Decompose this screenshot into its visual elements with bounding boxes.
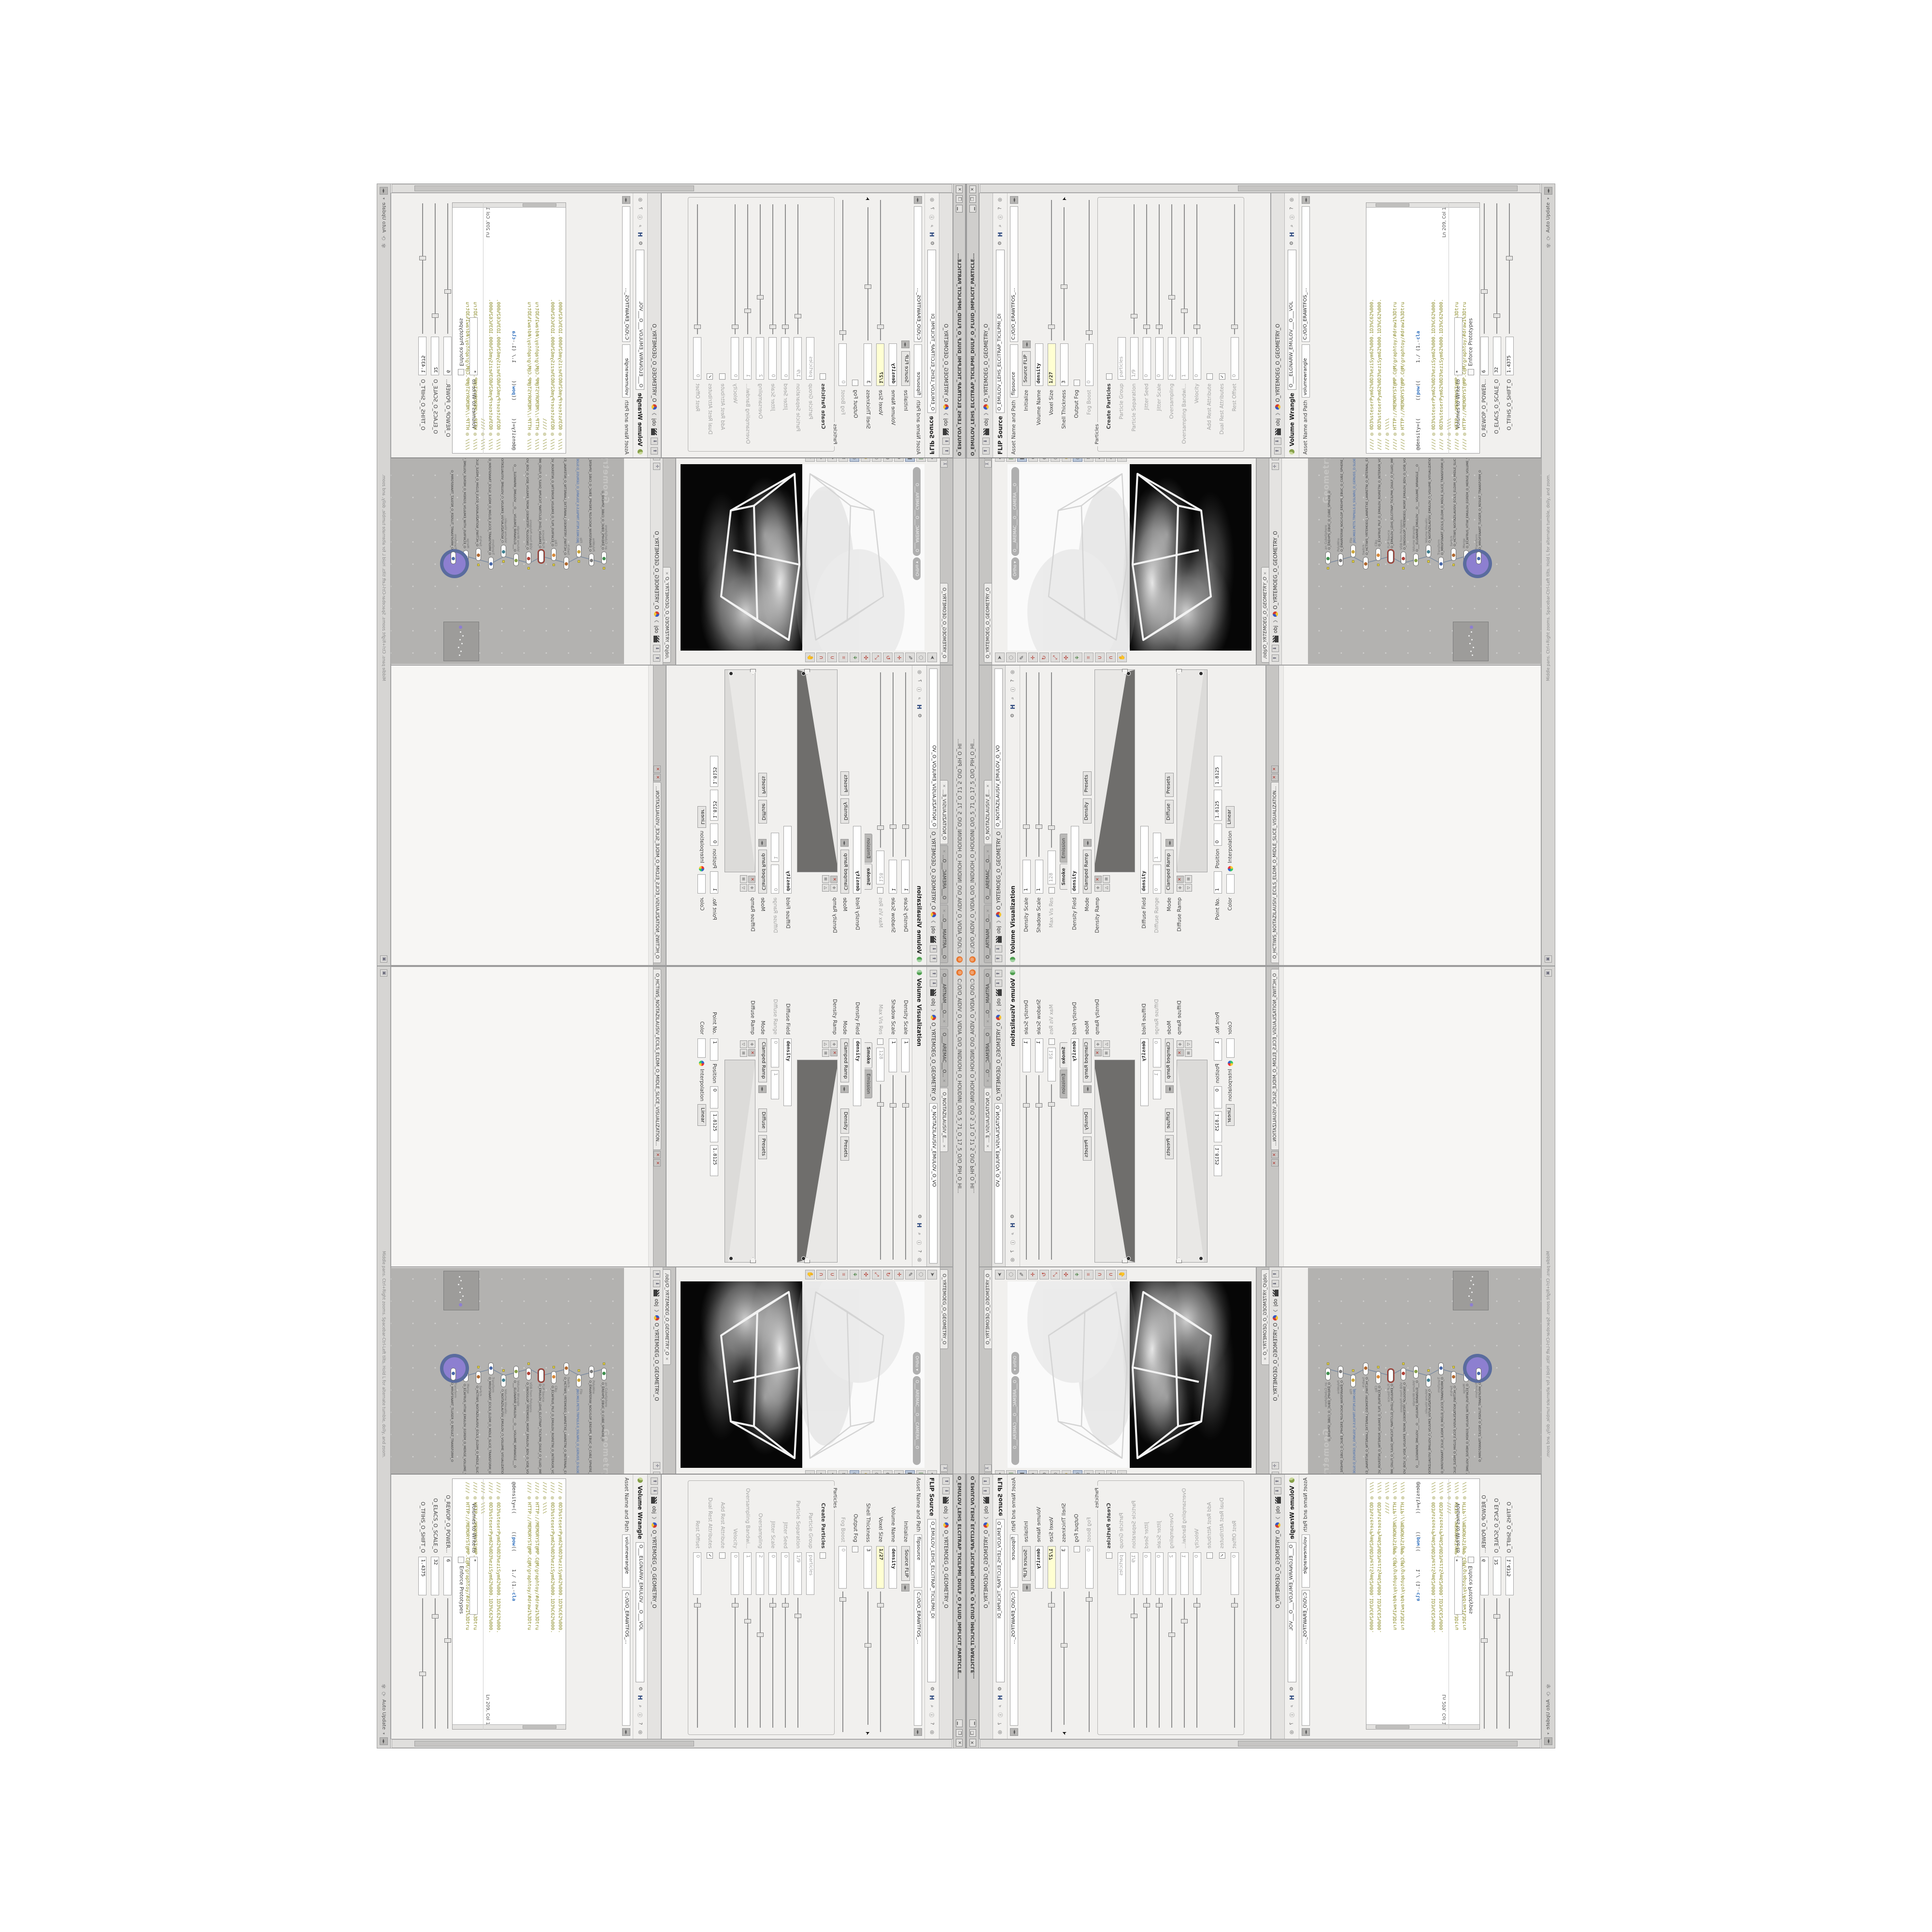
spinner-icon[interactable]: ◄► <box>914 196 923 204</box>
spinner-icon[interactable]: ◄► <box>1302 1728 1310 1736</box>
network-node[interactable]: TransformO_MROFSNART_TLUSER_O_RESULT_TRA… <box>450 1363 457 1462</box>
density-field[interactable]: density <box>853 1038 862 1106</box>
network-node[interactable]: CBgO_ECAFRUS_PILF_O_EMULOV_ROIRETNI_O_IN… <box>551 1366 557 1482</box>
node-flag-icon[interactable] <box>1377 1366 1379 1368</box>
forward-arrow-icon[interactable]: ⬇ <box>651 438 658 445</box>
param-slider[interactable] <box>744 201 752 334</box>
node-body[interactable] <box>1476 1368 1481 1380</box>
diffuse-field[interactable]: density <box>1140 826 1149 894</box>
diffuse-ramp-target[interactable]: Diffuse <box>758 800 767 824</box>
help-icon[interactable]: ? <box>1289 205 1294 212</box>
spinner-icon[interactable]: ◄► <box>759 1085 767 1093</box>
tab-visualization[interactable]: O_NOITAZILAUSIV_E...✕ <box>984 1088 992 1152</box>
initialize-dropdown[interactable]: Source FLIP <box>1022 351 1031 386</box>
spinner-icon[interactable]: ◄► <box>1023 341 1031 348</box>
add-rest-attribute-checkbox[interactable] <box>1207 373 1213 380</box>
asset-path-field[interactable]: C:/O/O_ERAWTFOS_... <box>914 206 923 342</box>
initialize-dropdown[interactable]: Source FLIP <box>901 351 910 386</box>
help-icon[interactable]: ? <box>929 205 935 212</box>
ramp-add-icon[interactable]: ✛ <box>1094 884 1102 892</box>
tab-slice-visualization-switch[interactable]: O_HCTIWS_NOITAZILAUSIV_ECILS_ELDIM_O_MID… <box>1271 969 1279 1150</box>
interpolation-dropdown[interactable]: Linear <box>1226 806 1235 828</box>
breadcrumb-path[interactable]: O_YRTEMOEG_O_GEOMETRY_O <box>931 831 937 909</box>
spinner-icon[interactable]: ◄► <box>1165 1085 1174 1093</box>
network-node[interactable]: MergeO_ECAFRUS_HTIW_EMULOV_EGREM_O_MERGE… <box>463 450 469 563</box>
gear-icon[interactable]: ⚙ <box>929 240 935 247</box>
param-slider[interactable] <box>877 1591 884 1735</box>
breadcrumb-path[interactable]: O_YRTEMOEG_O_GEOMETRY_O <box>652 324 657 402</box>
info-icon[interactable]: ⓘ <box>928 1711 936 1719</box>
tab-emission[interactable]: Emission <box>1060 1069 1067 1098</box>
slider-field[interactable]: 1.4375 <box>419 337 427 375</box>
add-rest-attribute-checkbox[interactable] <box>1207 1552 1213 1559</box>
diffuse-field[interactable]: density <box>1140 1038 1149 1106</box>
asset-path-field[interactable]: C:/O/O_ERAWTFOS_... <box>1302 1590 1310 1726</box>
param-slider[interactable] <box>1060 204 1068 341</box>
tab-smoke[interactable]: Smoke <box>865 1042 872 1068</box>
param-slider[interactable] <box>756 1598 764 1731</box>
slider-field[interactable]: 6 <box>444 1557 452 1595</box>
network-node[interactable]: FLIP SourceO_EMULOV_LEHS_ELCITRAP_TICILP… <box>1387 1369 1394 1482</box>
breadcrumb-root[interactable]: obj <box>943 418 949 426</box>
asset-path-field[interactable]: C:/O/O_ERAWTFOS_... <box>914 1590 923 1726</box>
color-swatch[interactable] <box>1226 1038 1235 1058</box>
brush-select-icon[interactable]: ✎ <box>905 1270 915 1279</box>
node-body[interactable] <box>1376 548 1381 561</box>
gear-icon[interactable]: ⚙ <box>1289 240 1294 247</box>
node-body[interactable] <box>476 1371 482 1384</box>
ramp-value-b[interactable]: 1.8125 <box>1214 756 1222 787</box>
target-icon[interactable]: ◎ <box>997 1729 1003 1736</box>
param-slider[interactable] <box>1193 201 1201 334</box>
node-flag-icon[interactable] <box>1427 560 1430 563</box>
back-arrow-icon[interactable]: ⬆ <box>1274 447 1281 455</box>
node-flag-icon[interactable] <box>553 564 555 566</box>
pose-icon[interactable]: ✣ <box>1062 1270 1071 1279</box>
tab-slice-visualization-switch[interactable]: O_HCTIWS_NOITAZILAUSIV_ECILS_ELDIM_O_MID… <box>1271 782 1279 963</box>
viewport-tab[interactable]: O_YRTEMOEG_O_GEOMETRY_O <box>940 1269 948 1349</box>
houdini-help-icon[interactable]: H <box>637 231 644 238</box>
gear-icon[interactable]: ⚙ <box>1289 1685 1294 1692</box>
back-arrow-icon[interactable]: ⬆ <box>942 447 950 455</box>
param-field[interactable]: density <box>889 1546 897 1589</box>
slider[interactable] <box>419 1598 426 1732</box>
gear-icon[interactable]: ⚙ <box>997 240 1003 247</box>
ramp-flip-icon[interactable]: △ <box>1103 884 1110 892</box>
snap-point-icon[interactable]: ∪ <box>827 653 837 663</box>
houdini-help-icon[interactable]: H <box>916 1222 923 1229</box>
density-ramp-target[interactable]: Density <box>840 798 849 824</box>
asset-name-field[interactable]: volumewrangle <box>1302 344 1310 398</box>
diffuse-mode-dropdown[interactable]: Clamped Ramp <box>758 1038 767 1082</box>
view-tool-icon[interactable]: ✋ <box>1117 653 1127 663</box>
brush-select-icon[interactable]: ✎ <box>1017 1270 1027 1279</box>
volumes-field[interactable]: * <box>1454 1557 1463 1615</box>
float-window-title-bar[interactable]: O_EMULOV_LEHS_ELCITRAP_TICILPMI_DIULF_O_… <box>953 1474 966 1748</box>
snap-grid-icon[interactable]: ⌗ <box>838 1270 848 1279</box>
diffuse-presets-button[interactable]: Presets <box>758 773 767 797</box>
wrangle-name-field[interactable]: O___ELGNARW_EMULOV___O___VOL <box>636 1542 645 1682</box>
slider-field[interactable]: 6 <box>444 337 452 375</box>
diffuse-presets-button[interactable]: Presets <box>1165 773 1174 797</box>
param-slider[interactable] <box>839 1591 847 1735</box>
param-field[interactable]: 1/9 <box>1130 337 1138 380</box>
param-field[interactable]: 2 <box>1168 1552 1176 1595</box>
snap-grid-icon[interactable]: ⌗ <box>838 653 848 663</box>
param-field[interactable]: 0 <box>781 1552 790 1595</box>
node-body[interactable] <box>1438 1363 1444 1375</box>
ramp-value-a[interactable]: 1.8125 <box>1214 790 1222 821</box>
target-icon[interactable]: ◎ <box>1010 668 1015 676</box>
help-icon[interactable]: ? <box>997 1720 1003 1727</box>
tab-camera[interactable]: O___AREMAC___O...✕ <box>984 1028 992 1087</box>
node-body[interactable] <box>1401 1368 1406 1380</box>
tab-smoke[interactable]: Smoke <box>1060 864 1067 890</box>
spinner-icon[interactable]: ◄► <box>841 1085 849 1093</box>
param-field[interactable]: 0 <box>839 343 847 386</box>
node-body[interactable] <box>501 545 507 557</box>
param-field[interactable]: 1/9 <box>794 1552 802 1595</box>
target-icon[interactable]: ◎ <box>638 1729 643 1736</box>
asset-path-field[interactable]: C:/O/O_ERAWTFOS_... <box>1010 1590 1018 1726</box>
network-node[interactable]: TransformO_MROFSNART_ECILS_ELDIM_O_MIDLE… <box>488 1363 495 1473</box>
search-icon[interactable]: ⌕ <box>917 695 922 702</box>
ramp-flip-icon[interactable]: △ <box>1103 1040 1110 1048</box>
translate-icon[interactable]: ✛ <box>894 653 904 663</box>
spinner-icon[interactable]: ◄► <box>759 839 767 847</box>
houdini-help-icon[interactable]: H <box>929 1694 936 1701</box>
gear-icon[interactable]: ⚙ <box>638 240 643 247</box>
search-icon[interactable]: ⌕ <box>929 222 935 229</box>
node-flag-icon[interactable] <box>1427 1369 1430 1372</box>
network-node[interactable]: FileJBO.M03.PETS.TRP0/LS.0_SSLNRG_O_GERU… <box>576 450 582 563</box>
param-slider[interactable] <box>1180 201 1188 334</box>
diffuse-mode-dropdown[interactable]: Clamped Ramp <box>1165 1038 1174 1082</box>
breadcrumb-path[interactable]: O_YRTEMOEG_O_GEOMETRY_O <box>943 1530 949 1608</box>
info-icon[interactable]: ⓘ <box>1009 686 1016 693</box>
up-arrow-icon[interactable]: ⬆ <box>653 654 660 662</box>
density-mode-dropdown[interactable]: Clamped Ramp <box>1083 1038 1092 1082</box>
asset-name-field[interactable]: volumewrangle <box>623 344 631 398</box>
param-slider[interactable] <box>839 197 847 341</box>
max-vis-slider[interactable] <box>877 1084 884 1263</box>
houdini-help-icon[interactable]: H <box>997 1694 1004 1701</box>
houdini-help-icon[interactable]: H <box>916 703 923 710</box>
search-icon[interactable]: ⌕ <box>1289 1703 1294 1710</box>
flip-name-field[interactable]: O_EMULOV_LEHS_ELCITRAP_TICILPMI_DI <box>928 1519 937 1682</box>
param-slider[interactable] <box>1168 1598 1176 1731</box>
max-vis-field[interactable]: 128 <box>1048 1048 1056 1081</box>
diffuse-range-max[interactable]: 1 <box>1153 1070 1161 1099</box>
axis-icon[interactable]: ⚘ <box>850 653 859 663</box>
minimize-icon[interactable]: ▁ <box>969 205 976 213</box>
param-slider[interactable] <box>1193 1598 1201 1731</box>
shadow-scale-field[interactable]: 1 <box>889 1038 897 1072</box>
density-presets-button[interactable]: Presets <box>840 771 849 796</box>
shadow-scale-slider[interactable] <box>889 669 897 857</box>
ramp-expand-icon[interactable]: ⊞ <box>1103 875 1110 883</box>
shadow-scale-field[interactable]: 1 <box>1035 860 1043 894</box>
close-icon[interactable]: ✕ <box>956 185 963 193</box>
slider[interactable] <box>1493 1598 1501 1732</box>
network-node[interactable]: an_CubeSphereO_EREHPS_EBUC_O_CUBE_SPHERE… <box>1324 491 1331 569</box>
param-slider[interactable] <box>1231 201 1238 334</box>
search-icon[interactable]: ⌕ <box>1010 695 1015 702</box>
gear-icon[interactable]: ⚙ <box>917 712 922 719</box>
param-field[interactable]: 3 <box>864 343 872 386</box>
node-body[interactable] <box>539 550 544 563</box>
param-slider[interactable] <box>1085 1591 1093 1735</box>
wrangle-name-field[interactable]: O___ELGNARW_EMULOV___O___VOL <box>1288 250 1296 390</box>
info-icon[interactable]: ⓘ <box>637 213 644 221</box>
node-body[interactable] <box>1325 1368 1331 1380</box>
node-flag-icon[interactable] <box>503 1369 505 1372</box>
ramp-value-a[interactable]: 1.8125 <box>1214 1111 1222 1142</box>
search-icon[interactable]: ⌕ <box>638 222 643 229</box>
network-node[interactable]: FLIP SourceO_EMULOV_LEHS_ELCITRAP_TICILP… <box>538 1369 545 1482</box>
node-body[interactable] <box>602 1368 607 1380</box>
network-node[interactable]: TransformO_MROFSNART_TLUSER_O_RESULT_TRA… <box>1475 470 1482 569</box>
param-slider[interactable] <box>864 1591 872 1728</box>
tab-camera[interactable]: O___AREMAC___O...✕ <box>984 845 992 904</box>
ramp-delete-icon[interactable]: ✕ <box>1177 1049 1184 1056</box>
node-body[interactable] <box>577 1375 582 1387</box>
density-scale-slider[interactable] <box>1023 669 1030 857</box>
create-particles-checkbox[interactable] <box>1106 1552 1112 1559</box>
network-node[interactable]: SwitchO_HCTIWS_NOITAZILAUSIV_ECILS_ELDIM… <box>475 450 482 566</box>
diffuse-ramp-widget[interactable] <box>1177 669 1207 872</box>
param-slider[interactable] <box>1048 1591 1055 1735</box>
node-body[interactable] <box>489 557 494 569</box>
point-no-field[interactable]: 1 <box>710 871 719 894</box>
ramp-expand-icon[interactable]: ⊞ <box>740 1049 747 1057</box>
param-field[interactable]: 0 <box>731 1552 739 1595</box>
param-slider[interactable] <box>877 197 884 341</box>
forward-arrow-icon[interactable]: ⬇ <box>982 438 990 445</box>
restore-icon[interactable]: ❐ <box>969 195 976 203</box>
spinner-icon[interactable]: ◄► <box>1083 1085 1092 1093</box>
param-field[interactable]: particles <box>1118 1552 1126 1595</box>
node-flag-icon[interactable] <box>1377 564 1379 566</box>
minimize-icon[interactable]: ▁ <box>956 205 963 213</box>
ramp-delete-icon[interactable]: ✕ <box>1094 1049 1102 1056</box>
initialize-dropdown[interactable]: Source FLIP <box>1022 1546 1031 1581</box>
breadcrumb-path[interactable]: O_YRTEMOEG_O_GEOMETRY_O <box>983 1530 989 1608</box>
param-field[interactable]: 0 <box>1143 337 1151 380</box>
network-node[interactable]: an_CubeSphereO_EREHPS_EBUC_O_CUBE_SPHERE… <box>601 491 608 569</box>
param-field[interactable]: 1/27 <box>877 1546 885 1589</box>
network-path[interactable]: O_YRTEMOEG_O_GEOMETRY_O <box>654 531 660 609</box>
view-tool-icon[interactable]: ✋ <box>805 653 815 663</box>
param-field[interactable]: 3 <box>864 1546 872 1589</box>
breadcrumb-root[interactable]: obj <box>931 926 937 934</box>
color-swatch[interactable] <box>698 1038 706 1058</box>
max-vis-field[interactable]: 128 <box>1048 851 1056 884</box>
network-canvas[interactable]: Geometry an_CubeSphereO_EREHPS_EBUC_O_CU… <box>1308 450 1555 664</box>
gear-icon[interactable]: ⚙ <box>1010 1213 1015 1220</box>
info-icon[interactable]: ⓘ <box>928 213 936 221</box>
param-field[interactable]: 1 <box>744 337 752 380</box>
enforce-prototypes-checkbox[interactable] <box>458 1557 465 1563</box>
snap-point-icon[interactable]: ∪ <box>1095 1270 1105 1279</box>
lasso-select-icon[interactable]: ◌ <box>916 653 926 663</box>
node-body[interactable] <box>1363 557 1368 569</box>
param-slider[interactable] <box>769 201 777 334</box>
ramp-add-icon[interactable]: ✛ <box>748 1040 755 1048</box>
param-slider[interactable] <box>1060 1591 1068 1728</box>
node-body[interactable] <box>539 1369 544 1382</box>
network-node[interactable]: TransformO_MROFSNART_TLUSER_O_RESULT_TRA… <box>450 470 457 569</box>
houdini-help-icon[interactable]: H <box>1009 703 1016 710</box>
close-tab-icon[interactable]: ✕ <box>653 774 661 781</box>
snap-edge-icon[interactable]: ∩ <box>816 653 826 663</box>
node-body[interactable] <box>489 1363 494 1375</box>
network-canvas[interactable]: Geometry an_CubeSphereO_EREHPS_EBUC_O_CU… <box>1308 1268 1555 1482</box>
ramp-delete-icon[interactable]: ✕ <box>1094 876 1102 883</box>
param-field[interactable]: 1/9 <box>1130 1552 1138 1595</box>
create-particles-checkbox[interactable] <box>820 373 826 380</box>
param-field[interactable]: 1/27 <box>1048 343 1056 386</box>
network-node[interactable]: SwitchO_HCTIWS_YRTEMOEG_LANRETXE_LANRETN… <box>563 450 570 569</box>
density-ramp-widget[interactable] <box>1094 669 1135 872</box>
node-body[interactable] <box>1325 552 1331 564</box>
param-slider[interactable] <box>694 1598 701 1731</box>
network-root[interactable]: obj <box>1273 1299 1279 1307</box>
node-body[interactable] <box>602 552 607 564</box>
color-swatch[interactable] <box>1226 874 1235 894</box>
ramp-value-b[interactable]: 1.8125 <box>710 1145 719 1176</box>
dual-rest-attributes-checkbox[interactable]: ✓ <box>707 373 713 380</box>
restore-icon[interactable]: ❐ <box>969 1729 976 1737</box>
translate-icon[interactable]: ✛ <box>1028 1270 1038 1279</box>
max-vis-checkbox[interactable] <box>878 887 884 894</box>
node-body[interactable] <box>1401 552 1406 564</box>
slider[interactable] <box>419 200 426 334</box>
param-slider[interactable] <box>1180 1598 1188 1731</box>
slider-field[interactable]: 1.4375 <box>1506 1557 1514 1595</box>
breadcrumb-root[interactable]: obj <box>983 1506 989 1514</box>
node-body[interactable] <box>1388 550 1393 563</box>
node-name-field[interactable]: O_NOITAZILAUSIV_EMULOV_O_VO <box>929 668 938 829</box>
ramp-add-icon[interactable]: ✛ <box>1177 884 1184 892</box>
breadcrumb-root[interactable]: obj <box>931 998 937 1006</box>
network-node[interactable]: VDB from PolygonsO_SNOGILOP_YRTEMOEG_MOR… <box>526 450 532 569</box>
volumes-field[interactable]: * <box>470 317 478 375</box>
diffuse-range-min[interactable]: 0 <box>1153 865 1161 894</box>
close-icon[interactable]: ✕ <box>969 185 976 193</box>
translate-icon[interactable]: ✛ <box>1028 653 1038 663</box>
asset-name-field[interactable]: volumewrangle <box>1302 1534 1310 1588</box>
close-tab-icon[interactable]: ✕ <box>653 766 661 773</box>
close-tab-icon[interactable]: ✕ <box>1271 1159 1279 1166</box>
help-icon[interactable]: ? <box>929 1720 935 1727</box>
param-field[interactable]: 3 <box>1060 343 1068 386</box>
restore-icon[interactable]: ❐ <box>956 1729 963 1737</box>
tab-visualization[interactable]: O_NOITAZILAUSIV_E...✕ <box>940 780 948 844</box>
point-no-field[interactable]: 1 <box>1214 1038 1222 1061</box>
color-wheel-icon[interactable] <box>1228 1061 1233 1066</box>
point-no-field[interactable]: 1 <box>710 1038 719 1061</box>
scale-icon[interactable]: ⤢ <box>872 653 881 663</box>
slider-field[interactable]: 32 <box>431 1557 440 1595</box>
param-field[interactable]: 0 <box>1085 343 1094 386</box>
max-vis-slider[interactable] <box>1048 1084 1055 1263</box>
density-ramp-target[interactable]: Density <box>1083 1108 1092 1134</box>
density-ramp-target[interactable]: Density <box>840 1108 849 1134</box>
axis-icon[interactable]: ⚘ <box>1073 1270 1082 1279</box>
diffuse-mode-dropdown[interactable]: Clamped Ramp <box>758 850 767 894</box>
node-flag-icon[interactable] <box>528 1363 530 1365</box>
viewport-tab[interactable]: O_YRTEMOEG_O_GEOMETRY_O <box>984 583 992 663</box>
network-node[interactable]: FileJBO.M03.PETS.TRP0/LS.0_SSLNRG_O_GERU… <box>1350 450 1356 563</box>
node-name-field[interactable]: O_NOITAZILAUSIV_EMULOV_O_VO <box>994 1103 1003 1264</box>
search-icon[interactable]: ⌕ <box>638 1703 643 1710</box>
viewport-tab[interactable]: O_YRTEMOEG_O_GEOMETRY_O <box>940 583 948 663</box>
network-canvas[interactable]: Geometry an_CubeSphereO_EREHPS_EBUC_O_CU… <box>377 450 624 664</box>
gear-icon[interactable]: ⚙ <box>917 1213 922 1220</box>
ramp-flip-icon[interactable]: ▽ <box>740 884 747 892</box>
network-root[interactable]: obj <box>654 1299 660 1307</box>
param-slider[interactable] <box>1130 201 1138 334</box>
float-window-scrollbar[interactable] <box>392 184 952 193</box>
node-name-field[interactable]: O_NOITAZILAUSIV_EMULOV_O_VO <box>929 1103 938 1264</box>
density-scale-field[interactable]: 1 <box>1023 1038 1031 1072</box>
param-field[interactable]: density <box>1035 343 1043 386</box>
tab-emission[interactable]: Emission <box>865 1069 872 1098</box>
node-body[interactable] <box>1438 557 1444 569</box>
color-wheel-icon[interactable] <box>699 866 705 871</box>
density-presets-button[interactable]: Presets <box>1083 1136 1092 1161</box>
node-flag-icon[interactable] <box>603 567 606 569</box>
network-node[interactable]: Volume Visualiz...O_NOITAZILAUSIV_EMULOV… <box>1425 452 1432 563</box>
node-body[interactable] <box>1388 1369 1393 1382</box>
forward-arrow-icon[interactable]: ⬇ <box>1274 1487 1281 1494</box>
slider-field[interactable]: 1.4375 <box>1506 337 1514 375</box>
spinner-icon[interactable]: ◄► <box>1302 196 1310 204</box>
auto-update-dropdown[interactable]: Auto Update <box>1546 202 1551 233</box>
close-icon[interactable]: ✕ <box>956 1739 963 1747</box>
forward-arrow-icon[interactable]: ⬇ <box>995 945 1002 952</box>
output-fog-checkbox[interactable] <box>1074 380 1080 386</box>
volumes-field[interactable]: * <box>470 1557 478 1615</box>
node-body[interactable] <box>1413 1366 1419 1378</box>
color-wheel-icon[interactable] <box>1228 866 1233 871</box>
spinner-icon[interactable]: ◄► <box>1023 1584 1031 1591</box>
network-node[interactable]: an_CubeSphereO_EREHPS_EBUC_O_CUBE_SPHERE… <box>1324 1363 1331 1441</box>
ramp-value-b[interactable]: 1.8125 <box>710 756 719 787</box>
back-arrow-icon[interactable]: ⬆ <box>942 1477 950 1485</box>
param-field[interactable]: 0 <box>1085 1546 1094 1589</box>
breadcrumb-path[interactable]: O_YRTEMOEG_O_GEOMETRY_O <box>931 1023 937 1101</box>
param-field[interactable]: 2 <box>756 1552 765 1595</box>
snap-grid-icon[interactable]: ⌗ <box>1084 1270 1094 1279</box>
target-icon[interactable]: ◎ <box>917 668 922 676</box>
network-node[interactable]: VDB from PolygonsO_SNOGILOP_YRTEMOEG_MOR… <box>1400 450 1406 569</box>
param-slider[interactable] <box>1155 1598 1163 1731</box>
scale-icon[interactable]: ⤢ <box>872 1270 881 1279</box>
param-field[interactable]: 1/27 <box>877 343 885 386</box>
asset-name-field[interactable]: flipsource <box>1010 344 1018 398</box>
spinner-icon[interactable]: ◄► <box>914 1728 923 1736</box>
network-minimap[interactable] <box>1453 622 1489 661</box>
refresh-icon[interactable]: ⟳ <box>381 1691 387 1696</box>
network-node[interactable]: Volume WrangleO___ELGNARW_EMULOV___O___V… <box>513 464 520 566</box>
network-node[interactable]: FLIP SourceO_EMULOV_LEHS_ELCITRAP_TICILP… <box>1387 450 1394 563</box>
spinner-icon[interactable]: ◄► <box>1010 1728 1018 1736</box>
search-icon[interactable]: ⌕ <box>929 1703 935 1710</box>
ortho-pill[interactable]: Ortho ▾ <box>913 1352 921 1375</box>
search-icon[interactable]: ⌕ <box>917 1230 922 1237</box>
